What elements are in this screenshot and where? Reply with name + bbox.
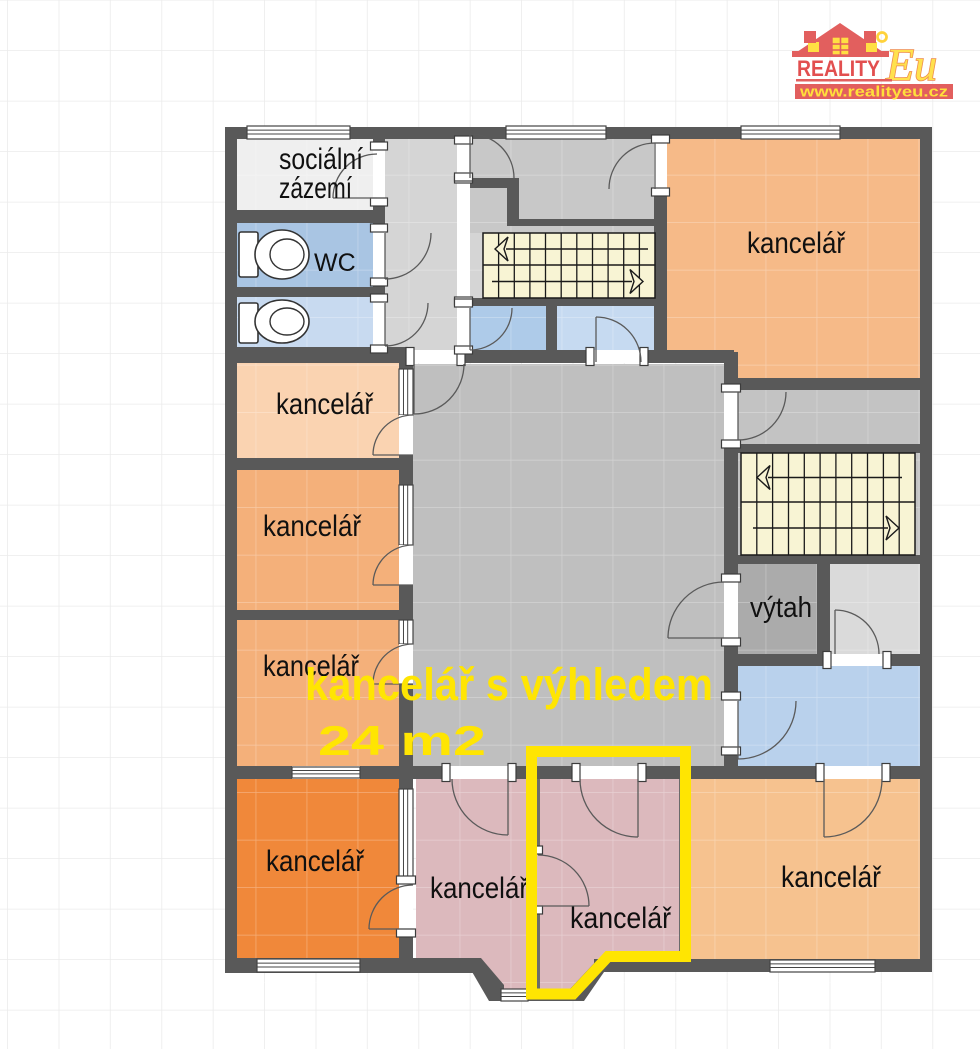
svg-text:zázemí: zázemí xyxy=(279,172,352,205)
svg-text:REALITY: REALITY xyxy=(797,56,880,81)
svg-text:kancelář: kancelář xyxy=(276,388,374,421)
svg-text:24 m2: 24 m2 xyxy=(318,717,486,764)
svg-text:kancelář: kancelář xyxy=(430,872,529,905)
svg-text:kancelář: kancelář xyxy=(266,845,365,878)
svg-text:kancelář: kancelář xyxy=(570,902,672,935)
svg-text:kancelář: kancelář xyxy=(747,227,846,260)
svg-text:výtah: výtah xyxy=(750,592,812,624)
svg-text:kancelář: kancelář xyxy=(263,510,362,543)
svg-text:WC: WC xyxy=(314,249,356,277)
svg-text:kancelář: kancelář xyxy=(781,861,882,894)
svg-text:kancelář s výhledem: kancelář s výhledem xyxy=(305,659,713,710)
svg-text:www.realityeu.cz: www.realityeu.cz xyxy=(799,85,948,101)
svg-text:Eu: Eu xyxy=(885,39,937,90)
